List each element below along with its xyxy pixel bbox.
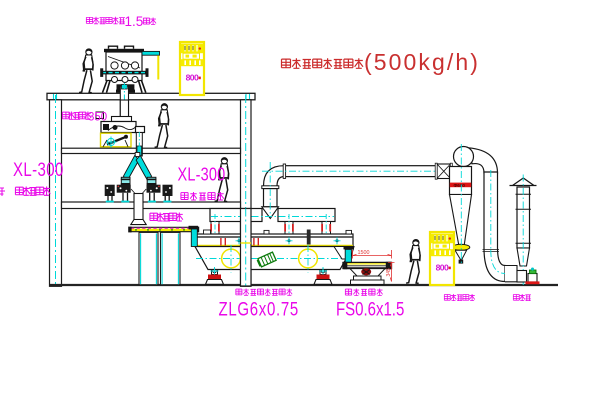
svg-text:XL-300: XL-300 [13,158,64,180]
svg-text:345: 345 [386,268,392,277]
svg-text:(500kg/h): (500kg/h) [364,49,480,75]
svg-text:350: 350 [88,112,107,124]
svg-text:1.5: 1.5 [125,14,144,29]
svg-text:1500: 1500 [358,250,370,256]
svg-text:FS0.6x1.5: FS0.6x1.5 [336,297,405,320]
svg-text:Φ600: Φ600 [454,183,466,188]
svg-text:ZLG6x0.75: ZLG6x0.75 [219,297,299,320]
svg-text:XL-300: XL-300 [178,164,226,185]
